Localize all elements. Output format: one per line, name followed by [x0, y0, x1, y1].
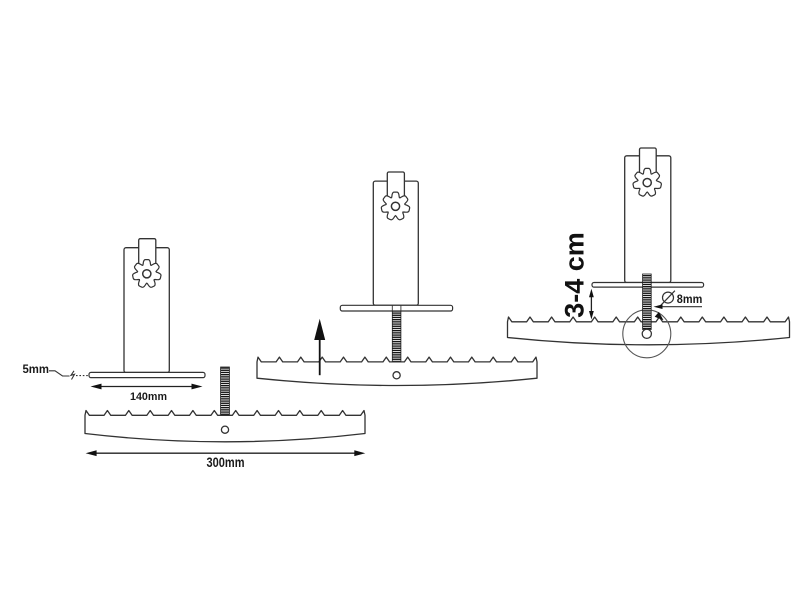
svg-text:300mm: 300mm	[207, 455, 245, 470]
svg-text:3-4 cm: 3-4 cm	[560, 232, 590, 318]
svg-text:8mm: 8mm	[677, 294, 703, 306]
svg-text:5mm: 5mm	[23, 364, 50, 376]
svg-text:140mm: 140mm	[130, 391, 167, 403]
